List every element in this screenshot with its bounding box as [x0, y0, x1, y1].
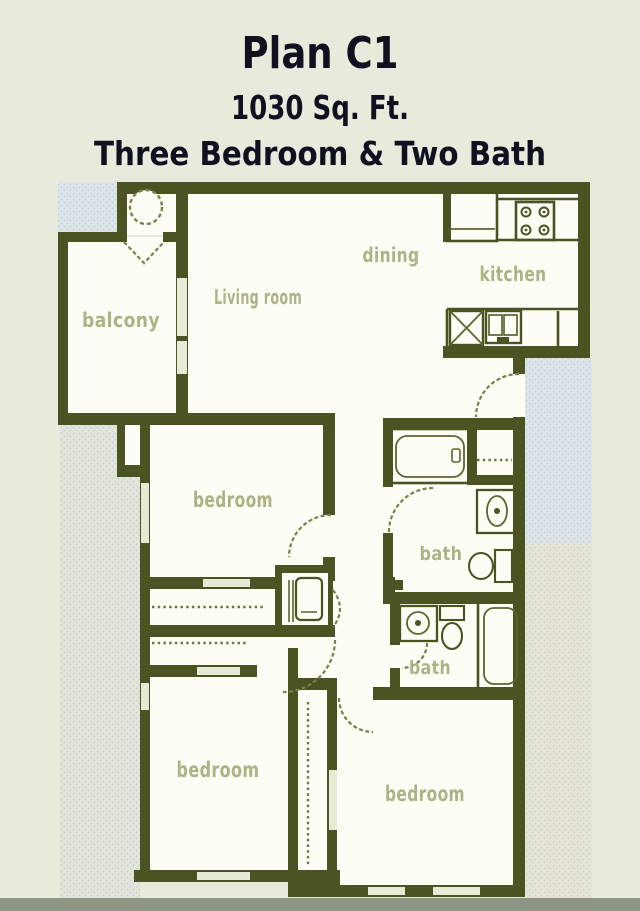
label-kitchen: kitchen [480, 262, 547, 286]
wall-segment [393, 580, 403, 590]
floor-bedroom1-hall [145, 420, 393, 690]
label-bath2: bath [409, 657, 451, 679]
wall-segment [58, 232, 68, 425]
floor-nook [124, 425, 141, 467]
wall-segment [323, 413, 335, 515]
plan-configuration: Three Bedroom & Two Bath [94, 134, 546, 173]
label-bedroom1: bedroom [193, 488, 273, 512]
water-heater-closet [275, 565, 340, 631]
label-bedroom3: bedroom [385, 782, 465, 806]
closet-door [329, 770, 337, 830]
label-balcony: balcony [82, 308, 160, 332]
window [368, 887, 405, 895]
wall-segment [390, 604, 400, 645]
plan-area: 1030 Sq. Ft. [231, 88, 409, 127]
hatch-right-side [525, 543, 592, 898]
hatch-left-side [60, 425, 140, 898]
window [177, 278, 187, 336]
window [141, 483, 149, 543]
floor-closet3 [298, 690, 328, 886]
label-dining: dining [363, 243, 420, 267]
wall-segment [288, 678, 337, 690]
window [141, 683, 149, 710]
window [197, 872, 250, 880]
wall-segment [335, 885, 525, 897]
hatch-entry [525, 358, 592, 543]
label-bath1: bath [420, 543, 463, 565]
wall-segment [467, 425, 477, 477]
wall-segment [513, 346, 525, 374]
wall-segment [383, 423, 393, 487]
wall-segment [390, 668, 400, 700]
footer-bar [0, 898, 640, 911]
label-bedroom2: bedroom [177, 758, 260, 782]
closet-door [197, 667, 240, 675]
floorplan-canvas: Plan C1 1030 Sq. Ft. Three Bedroom & Two… [0, 0, 640, 911]
window [177, 341, 187, 374]
wall-segment [163, 232, 177, 242]
balcony-door-indicator-icon [130, 190, 162, 224]
hatch-top-left [58, 182, 117, 232]
label-living-room: Living room [214, 285, 302, 309]
wall-segment [467, 475, 525, 485]
closet-door [203, 579, 250, 587]
wall-segment [58, 413, 335, 425]
floorplan-page: Plan C1 1030 Sq. Ft. Three Bedroom & Two… [0, 0, 640, 911]
window [433, 887, 480, 895]
wall-segment [288, 870, 340, 897]
wall-segment [578, 182, 590, 358]
plan-title: Plan C1 [242, 28, 399, 79]
